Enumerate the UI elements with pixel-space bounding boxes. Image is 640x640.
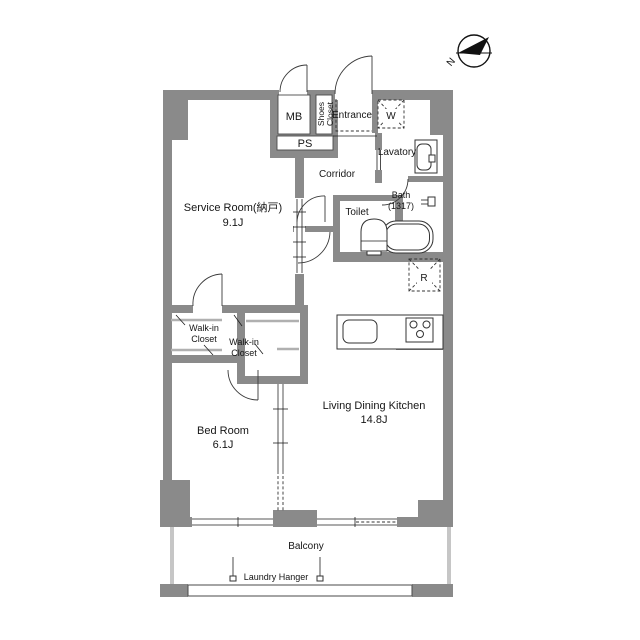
room-bath: Bath (1317) — [388, 190, 414, 211]
bath-label: Bath — [392, 190, 411, 200]
wic2-label-line1: Walk-in — [229, 337, 259, 347]
shoes-closet-label: Shoes Closet — [316, 101, 335, 126]
bath-size: (1317) — [388, 201, 414, 211]
toilet-icon — [361, 219, 387, 255]
room-bed-room: Bed Room 6.1J — [197, 425, 249, 451]
laundry-hanger-label: Laundry Hanger — [244, 572, 309, 582]
balcony — [160, 527, 453, 597]
room-walk-in-closet-1: Walk-in Closet — [189, 323, 219, 344]
balcony-railing — [188, 585, 412, 596]
meter-box-label: MB — [286, 111, 303, 123]
bed-room-label: Bed Room — [197, 425, 249, 437]
mb-door — [280, 65, 307, 92]
service-room-door — [193, 274, 222, 306]
washbasin-icon — [415, 140, 437, 173]
entrance-label: Entrance — [332, 110, 372, 121]
shower-valve-icon — [428, 197, 435, 206]
balcony-label: Balcony — [288, 541, 324, 552]
corridor-label: Corridor — [319, 169, 356, 180]
toilet-label: Toilet — [345, 207, 369, 218]
service-room-label: Service Room(納戸) — [184, 201, 282, 214]
room-ldk: Living Dining Kitchen 14.8J — [323, 400, 426, 426]
ldk-area: 14.8J — [361, 414, 388, 426]
fridge-label: R — [420, 273, 427, 284]
room-walk-in-closet-2: Walk-in Closet — [229, 337, 259, 358]
wic1-label-line1: Walk-in — [189, 323, 219, 333]
room-service-room: Service Room(納戸) 9.1J — [184, 201, 282, 229]
washer-label: W — [386, 111, 396, 122]
compass: N — [445, 35, 492, 69]
stove-icon — [406, 318, 433, 342]
service-room-area: 9.1J — [223, 217, 244, 229]
wic1-label-line2: Closet — [191, 334, 217, 344]
sink-icon — [343, 320, 377, 343]
floor-plan: N Service Room(納戸) 9.1J Bed Room 6.1J Li… — [0, 0, 640, 640]
shoes-closet-line2: Closet — [325, 101, 335, 126]
pipe-space-label: PS — [298, 138, 313, 150]
ldk-label: Living Dining Kitchen — [323, 400, 426, 412]
floor-plan-canvas: N Service Room(納戸) 9.1J Bed Room 6.1J Li… — [0, 0, 640, 640]
wic2-label-line2: Closet — [231, 348, 257, 358]
entrance-door — [335, 56, 372, 94]
lavatory-label: Lavatory — [378, 147, 416, 158]
compass-north-label: N — [445, 56, 458, 69]
bed-room-area: 6.1J — [213, 439, 234, 451]
kitchen-counter — [337, 315, 443, 349]
